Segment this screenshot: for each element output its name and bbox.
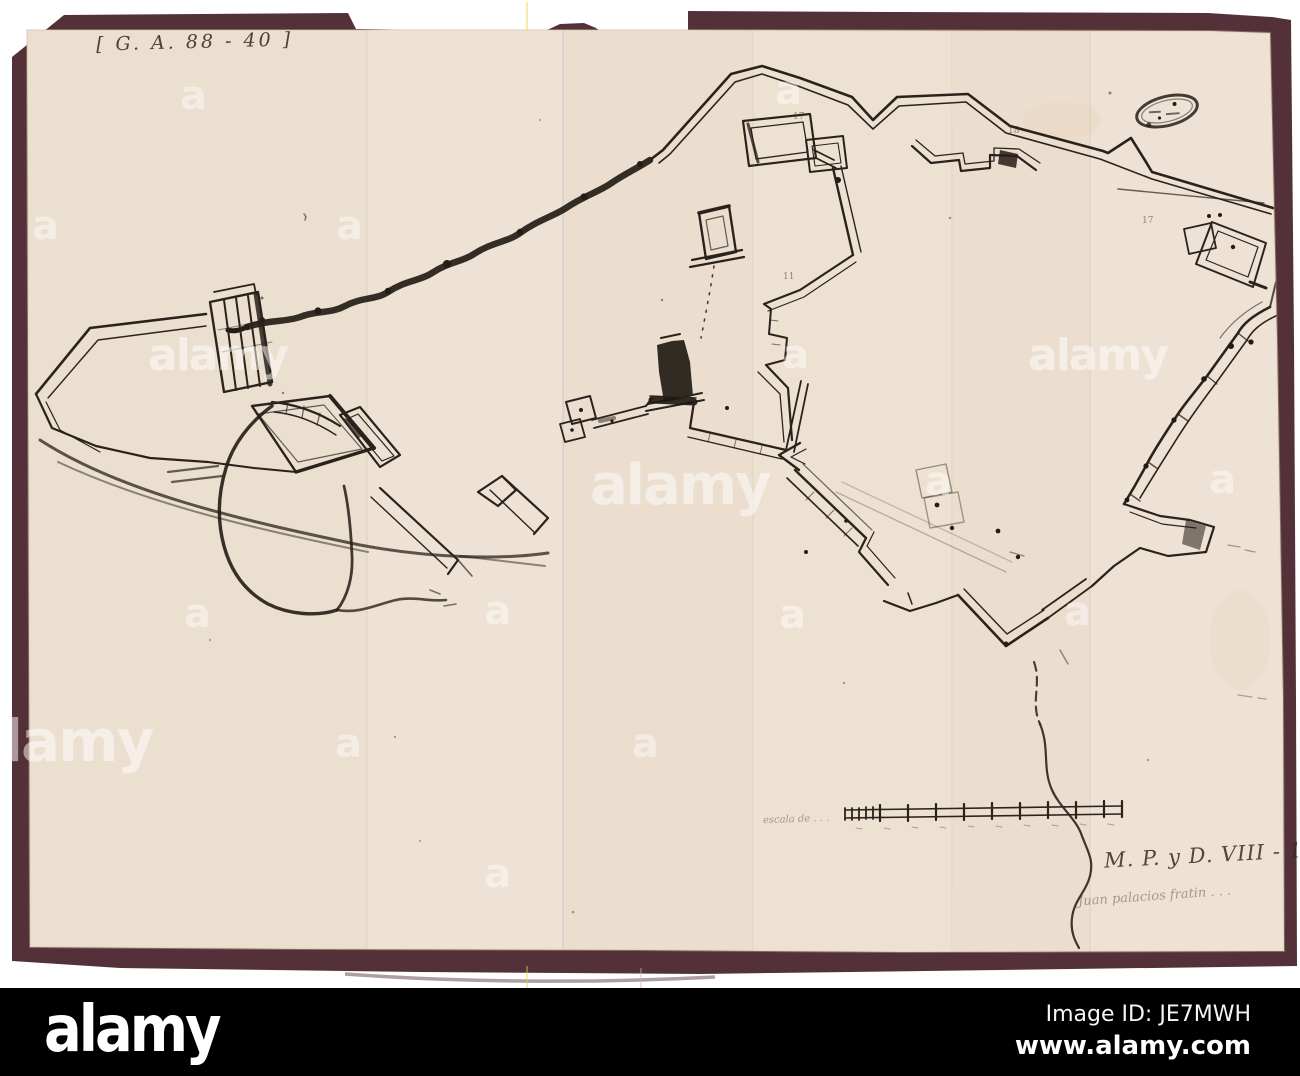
image-id-label: Image ID: JE7MWH (1015, 1002, 1251, 1027)
stock-photo-page: alamy alamy alamy alamy a a a a a a a a … (0, 0, 1300, 1076)
alamy-logo: alamy (44, 998, 219, 1062)
plan-number-mark: 17 (1142, 216, 1153, 226)
map-artwork (0, 0, 1300, 1076)
alamy-footer-bar: alamy Image ID: JE7MWH www.alamy.com (0, 988, 1300, 1076)
footer-right-text: Image ID: JE7MWH www.alamy.com (1015, 1002, 1251, 1061)
plan-number-mark: 18 (1008, 126, 1019, 136)
plan-number-mark: 17 (793, 112, 804, 122)
alamy-url: www.alamy.com (1015, 1031, 1251, 1061)
plan-number-mark: 11 (783, 272, 794, 282)
scale-label: escala de . . . (763, 813, 830, 826)
